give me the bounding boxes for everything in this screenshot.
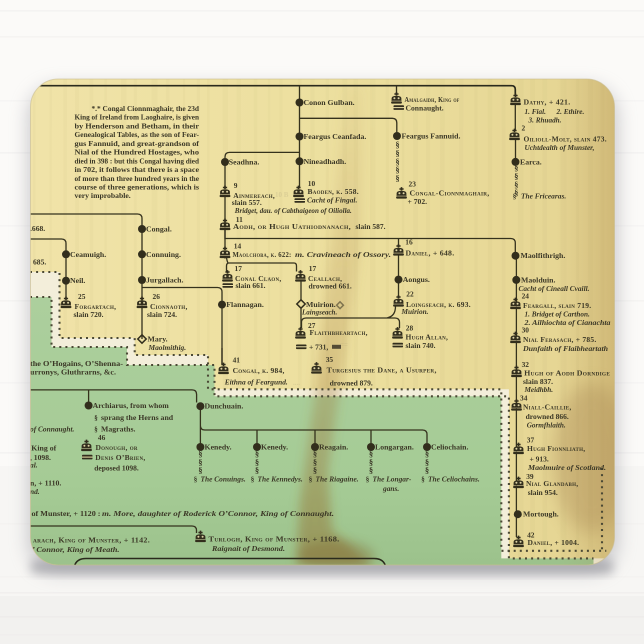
svg-text:1. Bridget of Carthon.: 1. Bridget of Carthon. bbox=[525, 311, 591, 319]
svg-text:46: 46 bbox=[98, 433, 106, 442]
svg-text:Connaught.: Connaught. bbox=[406, 104, 444, 113]
svg-text:urronys, Gluthrarns, &c.: urronys, Gluthrarns, &c. bbox=[30, 368, 116, 377]
svg-text:135: 135 bbox=[262, 276, 273, 284]
svg-text:The Conuings.: The Conuings. bbox=[201, 475, 246, 484]
svg-text:Uchtdealth of Munster,: Uchtdealth of Munster, bbox=[525, 143, 595, 152]
svg-text:Archiarus, from whom: Archiarus, from whom bbox=[93, 401, 170, 410]
svg-text:in 702, it follows that there: in 702, it follows that there is a space bbox=[75, 165, 200, 174]
svg-text:9: 9 bbox=[234, 181, 238, 190]
svg-text:35: 35 bbox=[326, 355, 334, 364]
svg-text:§: § bbox=[421, 476, 425, 484]
svg-text:of more than three hundred yea: of more than three hundred years in the bbox=[75, 174, 200, 183]
svg-text:10 B: 10 B bbox=[275, 191, 289, 199]
svg-text:Maolmithig.: Maolmithig. bbox=[148, 343, 187, 352]
svg-text:slain 837.: slain 837. bbox=[523, 377, 553, 386]
svg-text:Earca.: Earca. bbox=[520, 157, 542, 166]
svg-text:died in 398 : but this Congal: died in 398 : but this Congal having die… bbox=[75, 156, 200, 165]
svg-text:Connuing.: Connuing. bbox=[146, 250, 181, 259]
svg-text:Aongus.: Aongus. bbox=[403, 275, 430, 284]
svg-text:Feargall, slain 719.: Feargall, slain 719. bbox=[523, 301, 591, 310]
svg-text:very improbable.: very improbable. bbox=[75, 191, 131, 200]
svg-text:2. Ailhiochta of Cianachta: 2. Ailhiochta of Cianachta bbox=[523, 319, 611, 327]
svg-text:Genealogical Tables, as the so: Genealogical Tables, as the son of Fear- bbox=[75, 130, 200, 139]
svg-text:Ceamuigh.: Ceamuigh. bbox=[70, 250, 106, 259]
svg-text:Cacht of Cineall Cvaill.: Cacht of Cineall Cvaill. bbox=[519, 284, 590, 293]
svg-text:+ 702.: + 702. bbox=[408, 197, 428, 206]
svg-text:30: 30 bbox=[522, 326, 530, 335]
svg-text:3. Rhuadh.: 3. Rhuadh. bbox=[528, 116, 562, 124]
svg-text:Feargus Fannuid.: Feargus Fannuid. bbox=[402, 132, 461, 141]
svg-text:Flannagan.: Flannagan. bbox=[226, 300, 264, 309]
svg-text:Maolfithrigh.: Maolfithrigh. bbox=[521, 251, 566, 260]
svg-text:Congal.: Congal. bbox=[146, 225, 172, 234]
svg-text:of Connaught.: of Connaught. bbox=[30, 425, 75, 434]
svg-text:17: 17 bbox=[235, 264, 243, 273]
svg-text:Nial of the Hundred Hostages,: Nial of the Hundred Hostages, who bbox=[75, 148, 200, 157]
svg-text:King of Ireland from Laoghaire: King of Ireland from Laoghaire, is given bbox=[75, 113, 200, 122]
svg-text:22: 22 bbox=[406, 290, 414, 299]
svg-text:The Kennedys.: The Kennedys. bbox=[258, 475, 303, 484]
svg-text:37: 37 bbox=[527, 435, 535, 444]
svg-text:by Henderson and Betham, in th: by Henderson and Betham, in their bbox=[75, 121, 200, 130]
svg-text:gans.: gans. bbox=[382, 484, 399, 493]
svg-text:Turlogh, King of Munster, + 11: Turlogh, King of Munster, + 1168. bbox=[209, 535, 340, 544]
svg-text:2. Ethire.: 2. Ethire. bbox=[556, 108, 585, 116]
svg-text:Seadhna.: Seadhna. bbox=[229, 158, 260, 167]
svg-text:slain 720.: slain 720. bbox=[74, 310, 104, 319]
svg-text:§: § bbox=[194, 476, 198, 484]
svg-text:685.: 685. bbox=[33, 258, 46, 267]
svg-text:Kenedy.: Kenedy. bbox=[261, 443, 288, 452]
svg-text:drowned 879.: drowned 879. bbox=[330, 378, 373, 387]
svg-text:2: 2 bbox=[522, 123, 526, 132]
svg-text:m. More, daughter of Roderick: m. More, daughter of Roderick O’Connor, … bbox=[102, 509, 334, 518]
svg-text:Maolchoba, k. 622:: Maolchoba, k. 622: bbox=[233, 250, 292, 259]
svg-text:drowned 866.: drowned 866. bbox=[526, 412, 569, 421]
svg-text:The Longar-: The Longar- bbox=[373, 475, 412, 484]
svg-text:16: 16 bbox=[405, 237, 413, 246]
svg-text:Nial Ferasach, + 785.: Nial Ferasach, + 785. bbox=[523, 335, 597, 344]
svg-text:Daniel, + 648.: Daniel, + 648. bbox=[406, 248, 455, 257]
svg-text:Muirion.: Muirion. bbox=[401, 307, 429, 316]
svg-text:23: 23 bbox=[409, 180, 417, 189]
svg-text:The Riagaine.: The Riagaine. bbox=[316, 475, 359, 484]
svg-text:The Fricearas.: The Fricearas. bbox=[521, 192, 566, 201]
svg-text:*.* Congal Cionnmaghair, the 2: *.* Congal Cionnmaghair, the 23d bbox=[92, 104, 200, 113]
svg-text:Celiochain.: Celiochain. bbox=[431, 443, 469, 452]
svg-text:sprang the Herns and: sprang the Herns and bbox=[101, 413, 174, 422]
svg-text:§: § bbox=[94, 414, 98, 422]
svg-text:......: ...... bbox=[252, 368, 263, 376]
svg-text:Longargan.: Longargan. bbox=[375, 443, 414, 452]
svg-text:§: § bbox=[309, 476, 313, 484]
svg-text:Dunfaith of Flaibheartath: Dunfaith of Flaibheartath bbox=[522, 345, 608, 353]
svg-text:Donough, or: Donough, or bbox=[96, 443, 138, 452]
svg-text:Aodh, or Hugh Uathiodnanach,: Aodh, or Hugh Uathiodnanach, bbox=[233, 222, 351, 231]
svg-text:The Celiochains.: The Celiochains. bbox=[428, 475, 480, 484]
svg-text:slain 740.: slain 740. bbox=[406, 341, 436, 350]
svg-text:King of: King of bbox=[31, 444, 56, 453]
svg-text:Cacht of Fingal.: Cacht of Fingal. bbox=[307, 195, 357, 204]
svg-text:Magraths.: Magraths. bbox=[101, 425, 135, 434]
svg-text:slain 954.: slain 954. bbox=[528, 488, 558, 497]
svg-text:slain 724.: slain 724. bbox=[147, 310, 177, 319]
svg-text:25: 25 bbox=[78, 292, 86, 301]
svg-text:26: 26 bbox=[153, 292, 161, 301]
svg-text:Conon Gulban.: Conon Gulban. bbox=[304, 98, 355, 107]
svg-text:gus Fannuid, and great-grandso: gus Fannuid, and great-grandson of bbox=[75, 139, 200, 148]
svg-text:Reagain.: Reagain. bbox=[319, 443, 348, 452]
svg-text:.668.: .668. bbox=[30, 224, 45, 233]
svg-text:drowned 661.: drowned 661. bbox=[309, 282, 352, 291]
svg-text:24: 24 bbox=[522, 292, 530, 301]
svg-text:Eithna of Feargund.: Eithna of Feargund. bbox=[224, 378, 288, 387]
svg-text:f Connor, King of Meath.: f Connor, King of Meath. bbox=[32, 545, 120, 554]
svg-text:Feargus Ceanfada.: Feargus Ceanfada. bbox=[304, 132, 367, 141]
svg-text:Nial Glandabh,: Nial Glandabh, bbox=[526, 479, 578, 488]
svg-text:Mortough.: Mortough. bbox=[523, 510, 559, 519]
svg-text:§: § bbox=[251, 476, 255, 484]
svg-text:==: == bbox=[340, 341, 348, 349]
svg-text:arach, King of Munster, + 1142: arach, King of Munster, + 1142. bbox=[33, 536, 150, 545]
svg-text:+ 731,: + 731, bbox=[309, 343, 328, 352]
svg-text:Dunchuain.: Dunchuain. bbox=[205, 402, 244, 411]
svg-text:Hugh Fionnliath,: Hugh Fionnliath, bbox=[527, 444, 585, 453]
svg-text:deposed 1098.: deposed 1098. bbox=[94, 464, 139, 473]
svg-text:28: 28 bbox=[406, 323, 414, 332]
svg-text:Bridget, dau. of Cabthaigeon o: Bridget, dau. of Cabthaigeon of Oiliolla… bbox=[234, 206, 352, 215]
svg-text:§: § bbox=[366, 476, 370, 484]
svg-text:Meidhbh.: Meidhbh. bbox=[524, 386, 554, 394]
svg-text:Nineadhadh.: Nineadhadh. bbox=[304, 157, 347, 166]
svg-text:course of three generations, w: course of three generations, which is bbox=[75, 182, 200, 191]
svg-text:Laingseach.: Laingseach. bbox=[301, 309, 337, 317]
svg-text:Daniel, + 1004.: Daniel, + 1004. bbox=[528, 538, 580, 547]
svg-text:Kenedy.: Kenedy. bbox=[205, 443, 232, 452]
svg-text:§: § bbox=[395, 174, 399, 183]
svg-text:m. Cravineach of Ossory.: m. Cravineach of Ossory. bbox=[295, 250, 391, 259]
svg-text:34: 34 bbox=[520, 393, 528, 402]
svg-text:Dathy, + 421.: Dathy, + 421. bbox=[524, 97, 571, 106]
svg-text:17: 17 bbox=[309, 264, 317, 273]
svg-text:Niall-Caillie,: Niall-Caillie, bbox=[523, 403, 571, 412]
svg-text:al.: al. bbox=[30, 461, 38, 470]
svg-text:slain 587.: slain 587. bbox=[356, 222, 386, 231]
svg-text:41: 41 bbox=[233, 356, 241, 365]
svg-text:Flaithbheartach,: Flaithbheartach, bbox=[310, 328, 368, 337]
svg-text:+ 913.: + 913. bbox=[530, 454, 549, 463]
svg-text:....: .... bbox=[293, 379, 300, 387]
svg-text:of Munster, + 1120 :: of Munster, + 1120 : bbox=[32, 509, 101, 518]
svg-text:1. Fial.: 1. Fial. bbox=[525, 108, 547, 116]
svg-text:Neil.: Neil. bbox=[70, 276, 85, 285]
svg-text:§: § bbox=[513, 193, 517, 201]
svg-text:Raignait of Desmond.: Raignait of Desmond. bbox=[211, 544, 285, 553]
svg-text:nd.: nd. bbox=[30, 487, 40, 496]
svg-text:Maolmuire of Scotland.: Maolmuire of Scotland. bbox=[527, 464, 606, 472]
svg-text:Denis O’Brien,: Denis O’Brien, bbox=[95, 453, 145, 462]
svg-text:Jurgallach.: Jurgallach. bbox=[146, 276, 184, 285]
svg-text:Gormfhlaith.: Gormfhlaith. bbox=[527, 422, 566, 430]
svg-text:Turgesius the Dane, a Usurper,: Turgesius the Dane, a Usurper, bbox=[327, 365, 437, 374]
